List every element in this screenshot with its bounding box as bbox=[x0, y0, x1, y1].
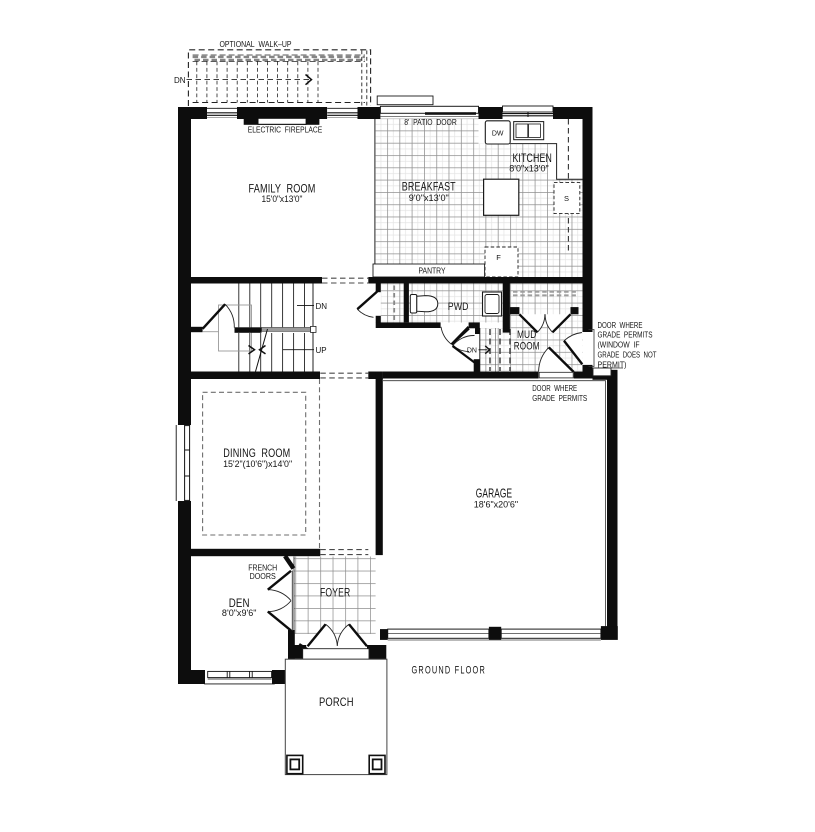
svg-text:8'0"x9'6": 8'0"x9'6" bbox=[222, 608, 257, 618]
svg-text:GRADE PERMITS: GRADE PERMITS bbox=[598, 331, 653, 340]
svg-text:DW: DW bbox=[492, 130, 504, 137]
svg-text:PERMIT): PERMIT) bbox=[598, 360, 627, 369]
svg-text:PORCH: PORCH bbox=[319, 695, 354, 709]
svg-text:9'0"x13'0": 9'0"x13'0" bbox=[409, 193, 449, 204]
svg-text:15'0"x13'0": 15'0"x13'0" bbox=[262, 194, 303, 205]
svg-text:FOYER: FOYER bbox=[320, 586, 350, 600]
svg-text:GRADE PERMITS: GRADE PERMITS bbox=[532, 394, 587, 403]
svg-text:DINING ROOM: DINING ROOM bbox=[223, 446, 290, 460]
svg-text:8'0"x13'0": 8'0"x13'0" bbox=[509, 164, 549, 175]
svg-text:GRADE DOES NOT: GRADE DOES NOT bbox=[598, 351, 657, 360]
svg-text:BREAKFAST: BREAKFAST bbox=[402, 180, 456, 194]
svg-text:PWD: PWD bbox=[448, 301, 469, 313]
svg-text:UP: UP bbox=[316, 346, 327, 355]
svg-text:GARAGE: GARAGE bbox=[476, 486, 513, 501]
svg-text:ROOM: ROOM bbox=[514, 341, 540, 353]
svg-text:DN: DN bbox=[316, 302, 328, 311]
svg-text:S: S bbox=[564, 194, 569, 203]
svg-text:MUD: MUD bbox=[517, 329, 537, 341]
svg-text:ELECTRIC FIREPLACE: ELECTRIC FIREPLACE bbox=[248, 124, 323, 134]
svg-text:DOOR WHERE: DOOR WHERE bbox=[532, 384, 577, 393]
svg-text:PANTRY: PANTRY bbox=[419, 266, 446, 276]
svg-text:DOORS: DOORS bbox=[250, 571, 276, 581]
svg-text:DN: DN bbox=[174, 76, 186, 85]
svg-text:F: F bbox=[496, 253, 501, 262]
svg-text:(WINDOW IF: (WINDOW IF bbox=[598, 341, 640, 350]
svg-text:8' PATIO DOOR: 8' PATIO DOOR bbox=[404, 117, 457, 127]
svg-text:15'2"(10'6")x14'0": 15'2"(10'6")x14'0" bbox=[223, 459, 292, 470]
svg-text:DOOR WHERE: DOOR WHERE bbox=[598, 321, 643, 330]
svg-text:18'6"x20'6": 18'6"x20'6" bbox=[474, 500, 518, 511]
svg-text:OPTIONAL WALK–UP: OPTIONAL WALK–UP bbox=[220, 39, 292, 49]
svg-text:GROUND FLOOR: GROUND FLOOR bbox=[412, 665, 487, 677]
